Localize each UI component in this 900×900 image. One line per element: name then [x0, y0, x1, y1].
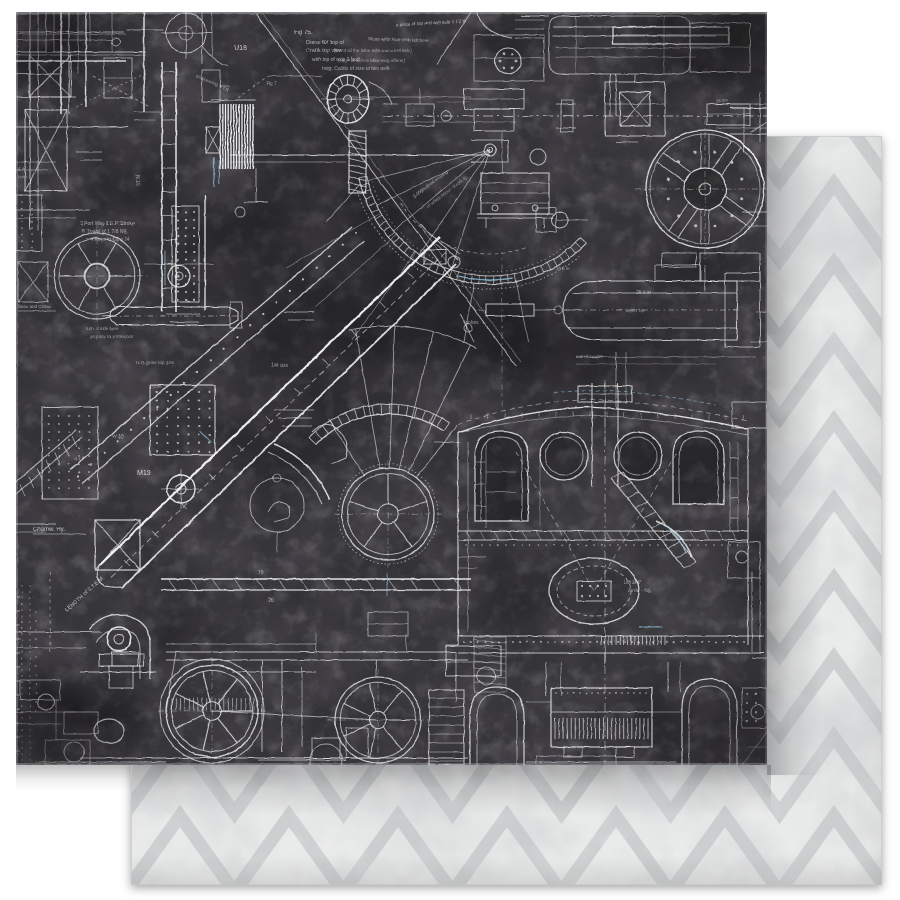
- svg-text:B Travel of 1 7/8 NB.: B Travel of 1 7/8 NB.: [82, 229, 128, 235]
- svg-text:W 10: W 10: [112, 434, 124, 440]
- svg-text:Fig 7: Fig 7: [266, 81, 277, 87]
- svg-text:ext. of smoke: ext. of smoke: [576, 354, 603, 359]
- svg-text:19: 19: [258, 570, 264, 576]
- svg-text:3 Port Way 4 E.P. Stroke: 3 Port Way 4 E.P. Stroke: [80, 221, 135, 227]
- svg-text:Fig 75.: Fig 75.: [294, 30, 313, 36]
- svg-text:heig. Castle of size to two ax: heig. Castle of size to two axle: [322, 66, 390, 72]
- svg-text:Inches: Inches: [464, 320, 479, 326]
- svg-text:Let 3/4": Let 3/4": [624, 580, 641, 586]
- svg-text:2ft 6 in: 2ft 6 in: [556, 266, 570, 271]
- svg-text:Scale: Scale: [151, 384, 163, 389]
- svg-text:U18: U18: [234, 45, 247, 52]
- svg-text:= 4 Keys to Gp x 24: = 4 Keys to Gp x 24: [86, 237, 130, 243]
- svg-text:Dome for top of: Dome for top of: [306, 40, 344, 46]
- svg-text:turn of axle here: turn of axle here: [86, 326, 119, 331]
- svg-text:2ft 6 in: 2ft 6 in: [636, 290, 651, 296]
- svg-text:bore: bore: [18, 174, 28, 179]
- svg-text:1/4 size: 1/4 size: [271, 363, 288, 369]
- svg-text:(set) - of axle to take weig: (set) - of axle to take weig offered: [338, 58, 405, 63]
- svg-text:to B-girder top 18in: to B-girder top 18in: [136, 360, 175, 365]
- svg-text:Base and Crane: Base and Crane: [18, 304, 51, 309]
- svg-text:20: 20: [268, 598, 274, 604]
- svg-text:(list of all the lathe axle an: (list of all the lathe axle and a tool a…: [334, 48, 412, 53]
- svg-text:throw - big: throw - big: [628, 588, 652, 594]
- svg-text:N.10: N.10: [134, 175, 140, 186]
- svg-text:Boiler top: Boiler top: [626, 308, 646, 313]
- svg-text:M19: M19: [137, 470, 151, 477]
- svg-text:as pony to smokejack: as pony to smokejack: [90, 334, 134, 339]
